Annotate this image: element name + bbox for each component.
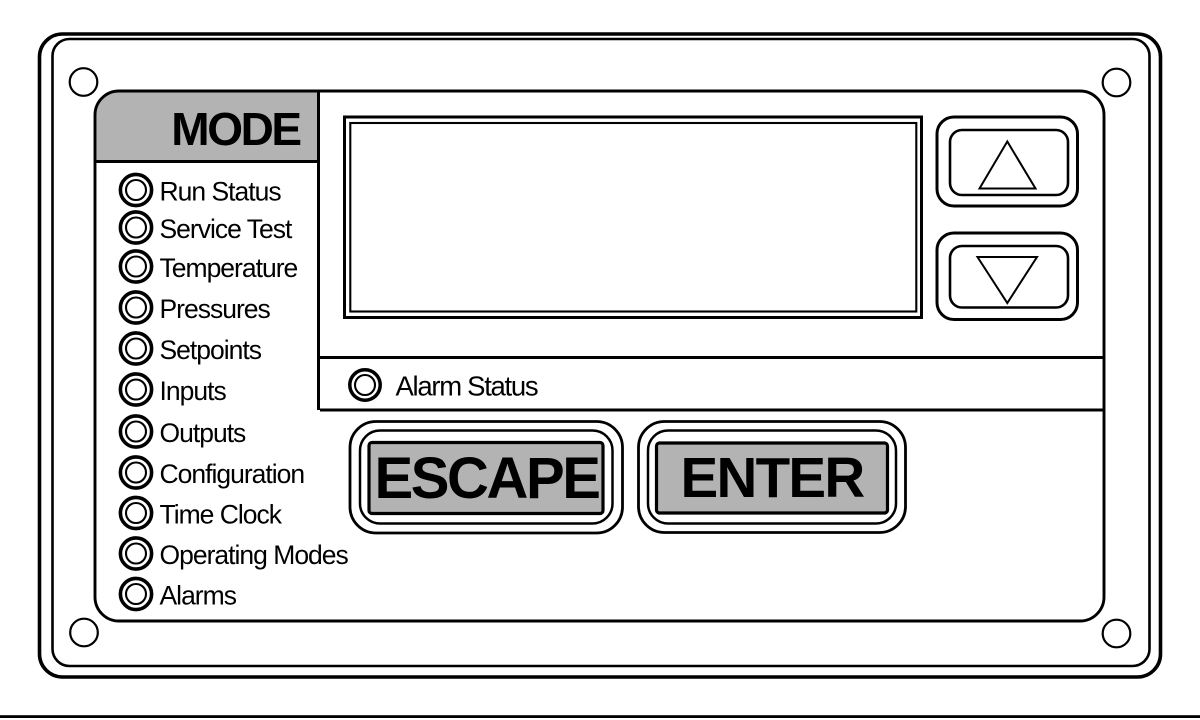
- svg-text:Alarm Status: Alarm Status: [396, 371, 538, 402]
- svg-text:Outputs: Outputs: [160, 418, 247, 448]
- svg-text:Time Clock: Time Clock: [160, 500, 283, 530]
- svg-text:Alarms: Alarms: [160, 581, 237, 611]
- svg-text:Configuration: Configuration: [160, 459, 305, 489]
- svg-text:Pressures: Pressures: [160, 294, 271, 324]
- svg-text:Operating Modes: Operating Modes: [160, 540, 349, 570]
- svg-text:ENTER: ENTER: [681, 446, 865, 509]
- svg-text:Inputs: Inputs: [160, 376, 227, 406]
- svg-text:MODE: MODE: [171, 103, 300, 155]
- svg-text:Setpoints: Setpoints: [160, 335, 262, 365]
- svg-text:Service Test: Service Test: [160, 214, 293, 244]
- svg-text:Temperature: Temperature: [160, 253, 298, 283]
- svg-text:Run Status: Run Status: [160, 177, 282, 207]
- svg-text:ESCAPE: ESCAPE: [374, 446, 599, 511]
